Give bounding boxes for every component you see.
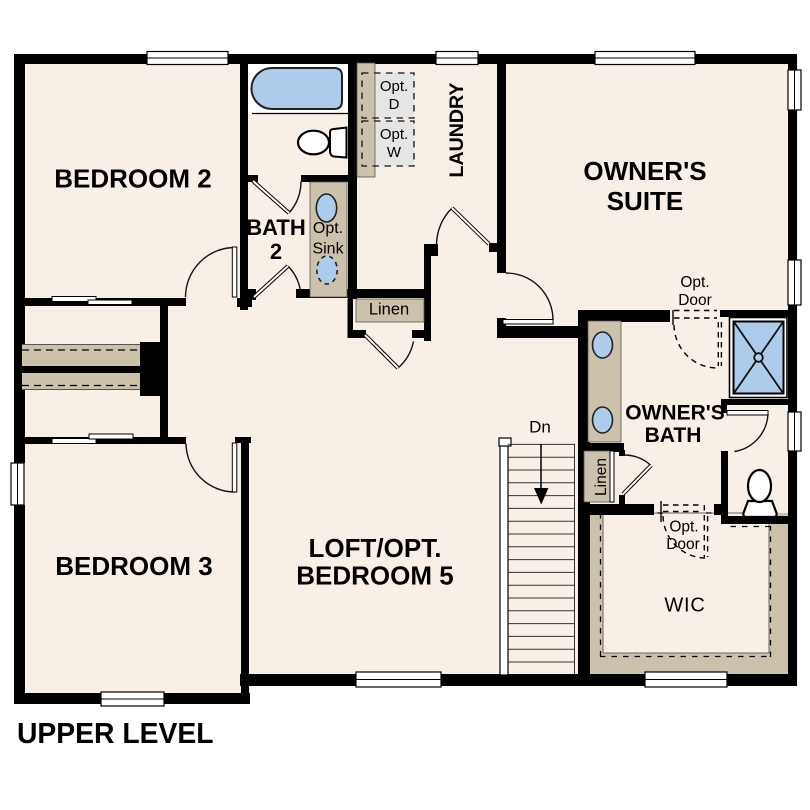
svg-text:BEDROOM 2: BEDROOM 2: [54, 164, 211, 194]
svg-text:Linen: Linen: [593, 458, 610, 496]
svg-text:Opt.: Opt.: [669, 519, 698, 536]
svg-text:W: W: [387, 144, 402, 161]
svg-text:OWNER'S: OWNER'S: [625, 402, 725, 425]
svg-text:BEDROOM 3: BEDROOM 3: [55, 551, 212, 581]
svg-text:Opt.: Opt.: [380, 78, 408, 95]
svg-text:Opt.: Opt.: [313, 220, 343, 237]
svg-text:Opt.: Opt.: [680, 274, 709, 291]
svg-text:Door: Door: [678, 292, 712, 309]
svg-text:BATH: BATH: [645, 424, 702, 447]
svg-text:Door: Door: [666, 536, 700, 553]
svg-text:D: D: [389, 96, 400, 113]
svg-text:Dn: Dn: [529, 418, 551, 437]
svg-text:LAUNDRY: LAUNDRY: [446, 83, 468, 178]
svg-text:SUITE: SUITE: [607, 186, 684, 216]
svg-text:Opt.: Opt.: [380, 126, 408, 143]
svg-text:WIC: WIC: [664, 595, 705, 617]
svg-text:Sink: Sink: [312, 241, 344, 258]
svg-text:2: 2: [270, 239, 282, 264]
svg-text:BEDROOM 5: BEDROOM 5: [296, 561, 453, 591]
svg-text:LOFT/OPT.: LOFT/OPT.: [309, 533, 442, 563]
svg-text:UPPER LEVEL: UPPER LEVEL: [17, 717, 214, 749]
svg-text:BATH: BATH: [246, 215, 305, 240]
svg-text:Linen: Linen: [369, 301, 409, 319]
svg-text:OWNER'S: OWNER'S: [583, 156, 706, 186]
